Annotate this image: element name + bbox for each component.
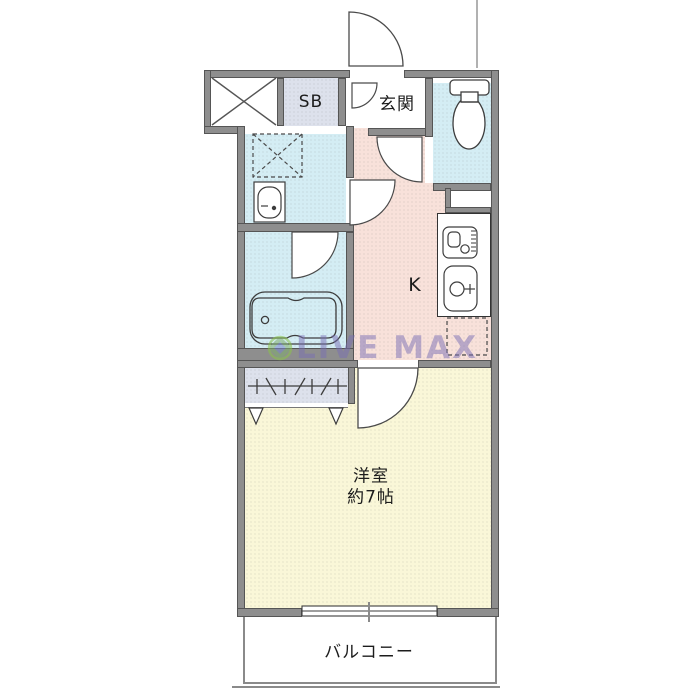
- wall: [346, 126, 354, 178]
- wall: [433, 183, 491, 191]
- entrance-label: 玄関: [379, 90, 415, 115]
- wall: [277, 78, 284, 126]
- wall: [237, 608, 302, 617]
- western-room-size: 約7帖: [347, 483, 395, 508]
- closet-door-track: [245, 403, 348, 408]
- toilet-floor: [433, 83, 491, 183]
- wall: [348, 364, 355, 404]
- storage-xbox-floor: [211, 77, 277, 126]
- wall: [404, 70, 499, 78]
- wall: [204, 70, 211, 134]
- wall: [338, 78, 346, 126]
- wall: [425, 78, 433, 137]
- wall: [491, 70, 499, 617]
- wall: [204, 70, 350, 78]
- kitchen-counter: [437, 213, 491, 317]
- washroom-floor: [245, 134, 346, 223]
- floor-plan: SB 玄関 K 洋室 約7帖 バルコニー LIVE MAX: [0, 0, 700, 700]
- wall: [437, 608, 499, 617]
- shoebox-label: SB: [299, 92, 323, 112]
- closet-floor: [245, 364, 348, 403]
- watermark-text: LIVE MAX: [296, 330, 478, 366]
- entrance-door-arc: [349, 12, 403, 66]
- wall: [237, 126, 245, 617]
- wall: [368, 128, 433, 136]
- wall: [237, 223, 354, 232]
- toilet-door-threshold: [425, 137, 433, 183]
- balcony-label: バルコニー: [324, 638, 414, 663]
- kitchen-label: K: [408, 274, 421, 296]
- wall: [445, 207, 491, 213]
- balcony-outer-edge: [232, 686, 500, 688]
